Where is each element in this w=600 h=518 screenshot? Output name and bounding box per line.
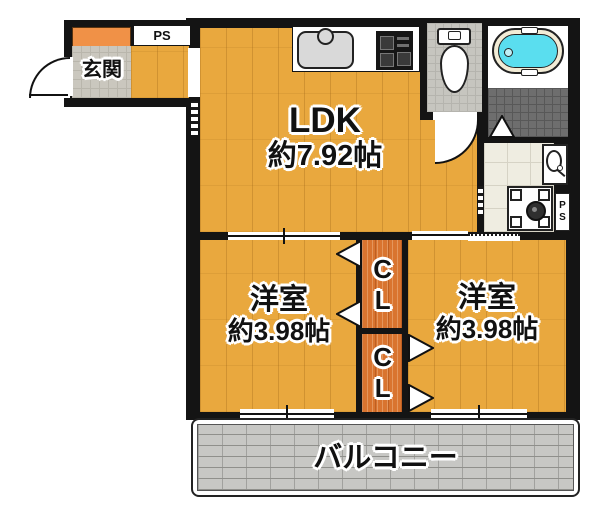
front-door-arc-icon — [29, 57, 70, 98]
bathtub-handle-top — [521, 27, 538, 34]
kitchen-faucet-icon — [317, 28, 334, 45]
closet-lower-door-triangle-icon — [408, 384, 434, 412]
closet-upper-label: CL — [362, 248, 402, 322]
closet-upper-door-triangle-icon — [336, 300, 362, 328]
hall-ldk-opening — [188, 48, 200, 97]
toilet-lid-button — [448, 31, 461, 40]
bedroom-right-label: 洋室 — [410, 283, 564, 313]
pipe-space-top: PS — [133, 25, 191, 46]
bathtub-drain-icon — [504, 48, 513, 57]
ldk-area-label: 約7.92帖 — [230, 141, 420, 171]
hall-sliding-door-marks — [191, 101, 198, 135]
closet-lower-label: CL — [362, 338, 402, 408]
bathroom-door-triangle-icon — [489, 115, 515, 138]
bedroom-left-label: 洋室 — [204, 285, 354, 315]
balcony: バルコニー — [191, 418, 580, 497]
ldk-bedroom-left-sliding-door — [228, 232, 340, 240]
toilet-door-opening — [433, 112, 477, 120]
bathtub-handle-bottom — [521, 69, 538, 76]
pipe-space-right: PS — [555, 193, 570, 231]
stove-icon — [376, 31, 413, 70]
floor-plan: 玄関 PS LDK 約7.92帖 — [0, 0, 600, 518]
entrance-hall-floor — [131, 46, 189, 98]
washroom-sliding-door-marks — [478, 186, 483, 214]
washing-machine-icon — [507, 186, 553, 231]
closet-upper-door-triangle-icon — [336, 240, 362, 268]
balcony-label: バルコニー — [193, 443, 578, 473]
bedroom-left-area-label: 約3.98帖 — [204, 318, 354, 345]
entrance-label: 玄関 — [72, 60, 132, 81]
ldk-bedroom-right-opening — [412, 231, 468, 240]
ldk-label: LDK — [230, 103, 420, 140]
vanity-sink-icon — [542, 144, 568, 185]
front-door-leaf — [29, 94, 68, 96]
shoe-cabinet — [72, 27, 131, 48]
closet-lower-door-triangle-icon — [408, 334, 434, 362]
washroom-bedroom-dotted-door — [468, 234, 520, 241]
